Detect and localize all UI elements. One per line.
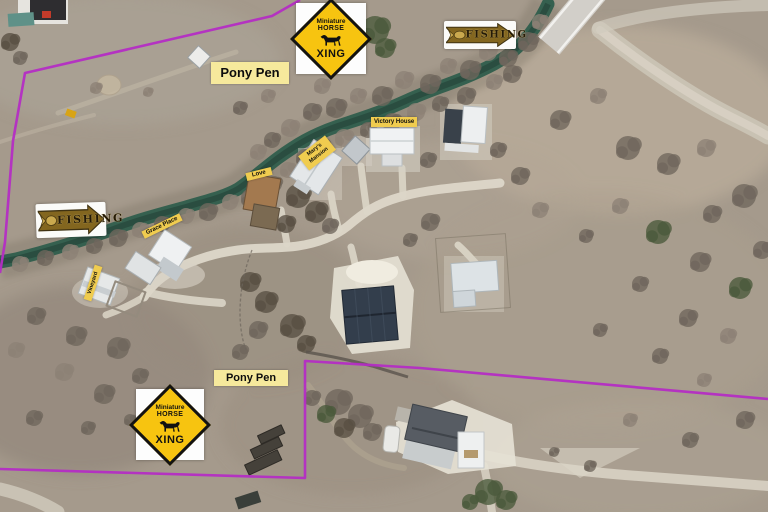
fishing-text: FISHING [57, 211, 125, 226]
fishing-text: FISHING [466, 29, 528, 40]
pony-pen-label-bottom: Pony Pen [214, 370, 288, 386]
xing-line3: XING [317, 48, 346, 60]
trailer [235, 491, 262, 510]
camper-trailer [383, 425, 401, 452]
horse-xing-sign-top: Miniature HORSE XING [296, 3, 366, 74]
horse-icon [317, 32, 345, 48]
xing-line1: Miniature [156, 404, 185, 411]
pony-pen-label-top: Pony Pen [211, 62, 289, 84]
xing-line1: Miniature [317, 18, 346, 25]
terrain-layer [0, 0, 768, 512]
aerial-photo: Pony Pen Pony Pen Victory House Mary's M… [0, 0, 768, 512]
fishing-sign-left: FISHING [35, 202, 106, 238]
xing-line3: XING [156, 434, 185, 446]
building-barn-topleft [8, 0, 68, 27]
xing-line2: HORSE [318, 25, 344, 32]
xing-line2: HORSE [157, 411, 183, 418]
horse-icon [156, 418, 184, 434]
horse-xing-sign-bottom: Miniature HORSE XING [136, 389, 204, 460]
victory-house-label: Victory House [371, 117, 417, 127]
fishing-sign-top: FISHING [444, 21, 516, 49]
cabin-love [243, 173, 281, 230]
barn-center [342, 286, 399, 344]
